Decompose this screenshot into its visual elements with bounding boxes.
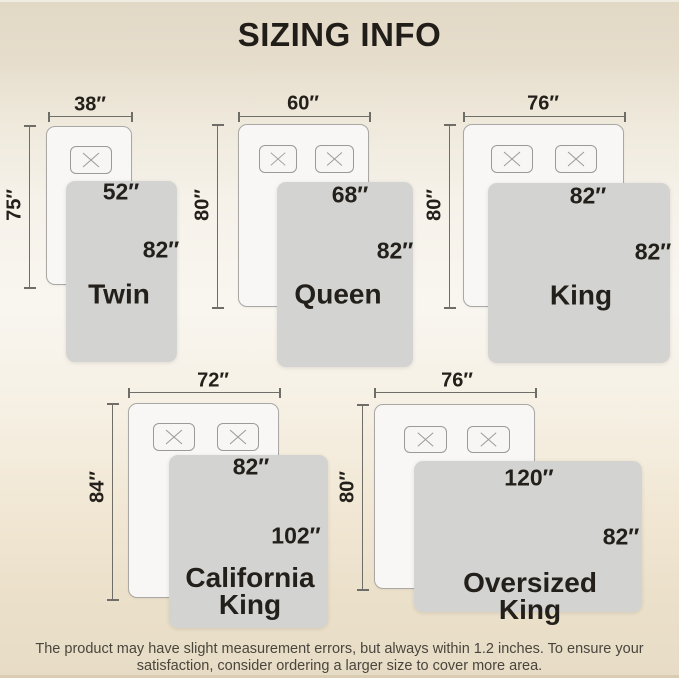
king-blanket bbox=[488, 183, 670, 363]
california-king-name-label: CaliforniaKing bbox=[185, 564, 314, 618]
california-king-height-label: 84″ bbox=[87, 471, 110, 503]
twin-height-label: 75″ bbox=[4, 189, 27, 221]
footer-disclaimer-line1: The product may have slight measurement … bbox=[0, 641, 679, 657]
oversized-king-name-label: OversizedKing bbox=[463, 569, 597, 623]
california-king-pillow-right-icon bbox=[217, 423, 259, 451]
twin-blanket-height-label: 82″ bbox=[143, 237, 180, 264]
oversized-king-height-label: 80″ bbox=[337, 471, 360, 503]
pillow-x-icon bbox=[316, 146, 353, 172]
oversized-king-blanket-height-label: 82″ bbox=[603, 524, 640, 551]
queen-pillow-right-icon bbox=[315, 145, 354, 173]
king-blanket-height-label: 82″ bbox=[635, 239, 672, 266]
twin-blanket bbox=[66, 181, 177, 362]
top-edge-line bbox=[0, 0, 679, 2]
twin-name-label: Twin bbox=[88, 281, 150, 308]
oversized-king-name-line2: King bbox=[463, 596, 597, 623]
king-pillow-left-icon bbox=[491, 145, 533, 173]
king-blanket-width-label: 82″ bbox=[570, 183, 607, 210]
queen-blanket-height-label: 82″ bbox=[377, 238, 414, 265]
pillow-x-icon bbox=[492, 146, 532, 172]
footer-disclaimer-line2: satisfaction, consider ordering a larger… bbox=[0, 658, 679, 674]
pillow-x-icon bbox=[154, 424, 194, 450]
queen-width-label: 60″ bbox=[287, 93, 319, 116]
pillow-x-icon bbox=[468, 427, 509, 452]
sizing-info-page: { "title": "SIZING INFO", "beds": [ { "n… bbox=[0, 0, 679, 678]
queen-pillow-left-icon bbox=[259, 145, 297, 173]
california-king-blanket-width-label: 82″ bbox=[233, 454, 270, 481]
california-king-blanket-height-label: 102″ bbox=[271, 523, 320, 550]
oversized-king-name-line1: Oversized bbox=[463, 569, 597, 596]
california-king-pillow-left-icon bbox=[153, 423, 195, 451]
pillow-x-icon bbox=[405, 427, 446, 452]
queen-height-label: 80″ bbox=[192, 189, 215, 221]
pillow-x-icon bbox=[218, 424, 258, 450]
twin-blanket-width-label: 52″ bbox=[103, 179, 140, 206]
king-height-label: 80″ bbox=[424, 189, 447, 221]
oversized-king-pillow-left-icon bbox=[404, 426, 447, 453]
california-king-name-line1: California bbox=[185, 564, 314, 591]
oversized-king-width-label: 76″ bbox=[441, 370, 473, 393]
california-king-width-label: 72″ bbox=[197, 370, 229, 393]
king-name-label: King bbox=[550, 282, 612, 309]
page-title: SIZING INFO bbox=[0, 16, 679, 54]
queen-name-label: Queen bbox=[294, 281, 381, 308]
oversized-king-blanket-width-label: 120″ bbox=[504, 465, 553, 492]
twin-width-label: 38″ bbox=[74, 94, 106, 117]
oversized-king-pillow-right-icon bbox=[467, 426, 510, 453]
twin-pillow-icon bbox=[70, 146, 112, 174]
pillow-x-icon bbox=[71, 147, 111, 173]
california-king-name-line2: King bbox=[185, 591, 314, 618]
king-width-label: 76″ bbox=[527, 93, 559, 116]
queen-blanket-width-label: 68″ bbox=[332, 182, 369, 209]
queen-blanket bbox=[277, 182, 413, 367]
pillow-x-icon bbox=[556, 146, 596, 172]
pillow-x-icon bbox=[260, 146, 296, 172]
king-pillow-right-icon bbox=[555, 145, 597, 173]
